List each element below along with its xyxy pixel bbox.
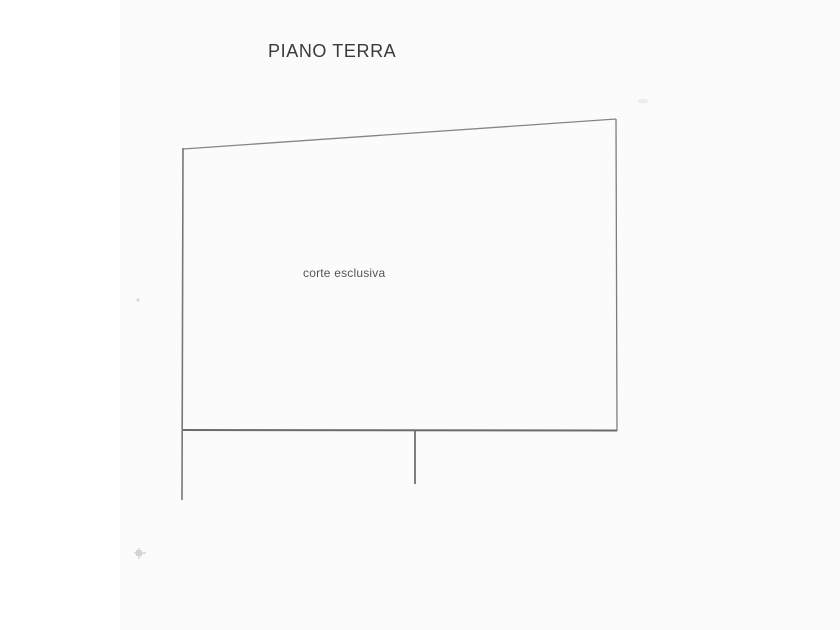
courtyard-top-wall: [183, 119, 616, 149]
scanned-floor-plan-page: PIANO TERRA corte esclusiva: [0, 0, 840, 630]
fold-cross-artifact: [134, 548, 146, 559]
courtyard-left-wall-extended: [182, 148, 183, 500]
courtyard-right-wall: [616, 119, 617, 431]
smudge-artifact: [638, 99, 648, 104]
courtyard-region-label: corte esclusiva: [303, 266, 385, 280]
fold-dot-artifact: [136, 298, 139, 301]
floor-plan-drawing: [0, 0, 840, 630]
courtyard-bottom-wall: [182, 430, 617, 431]
